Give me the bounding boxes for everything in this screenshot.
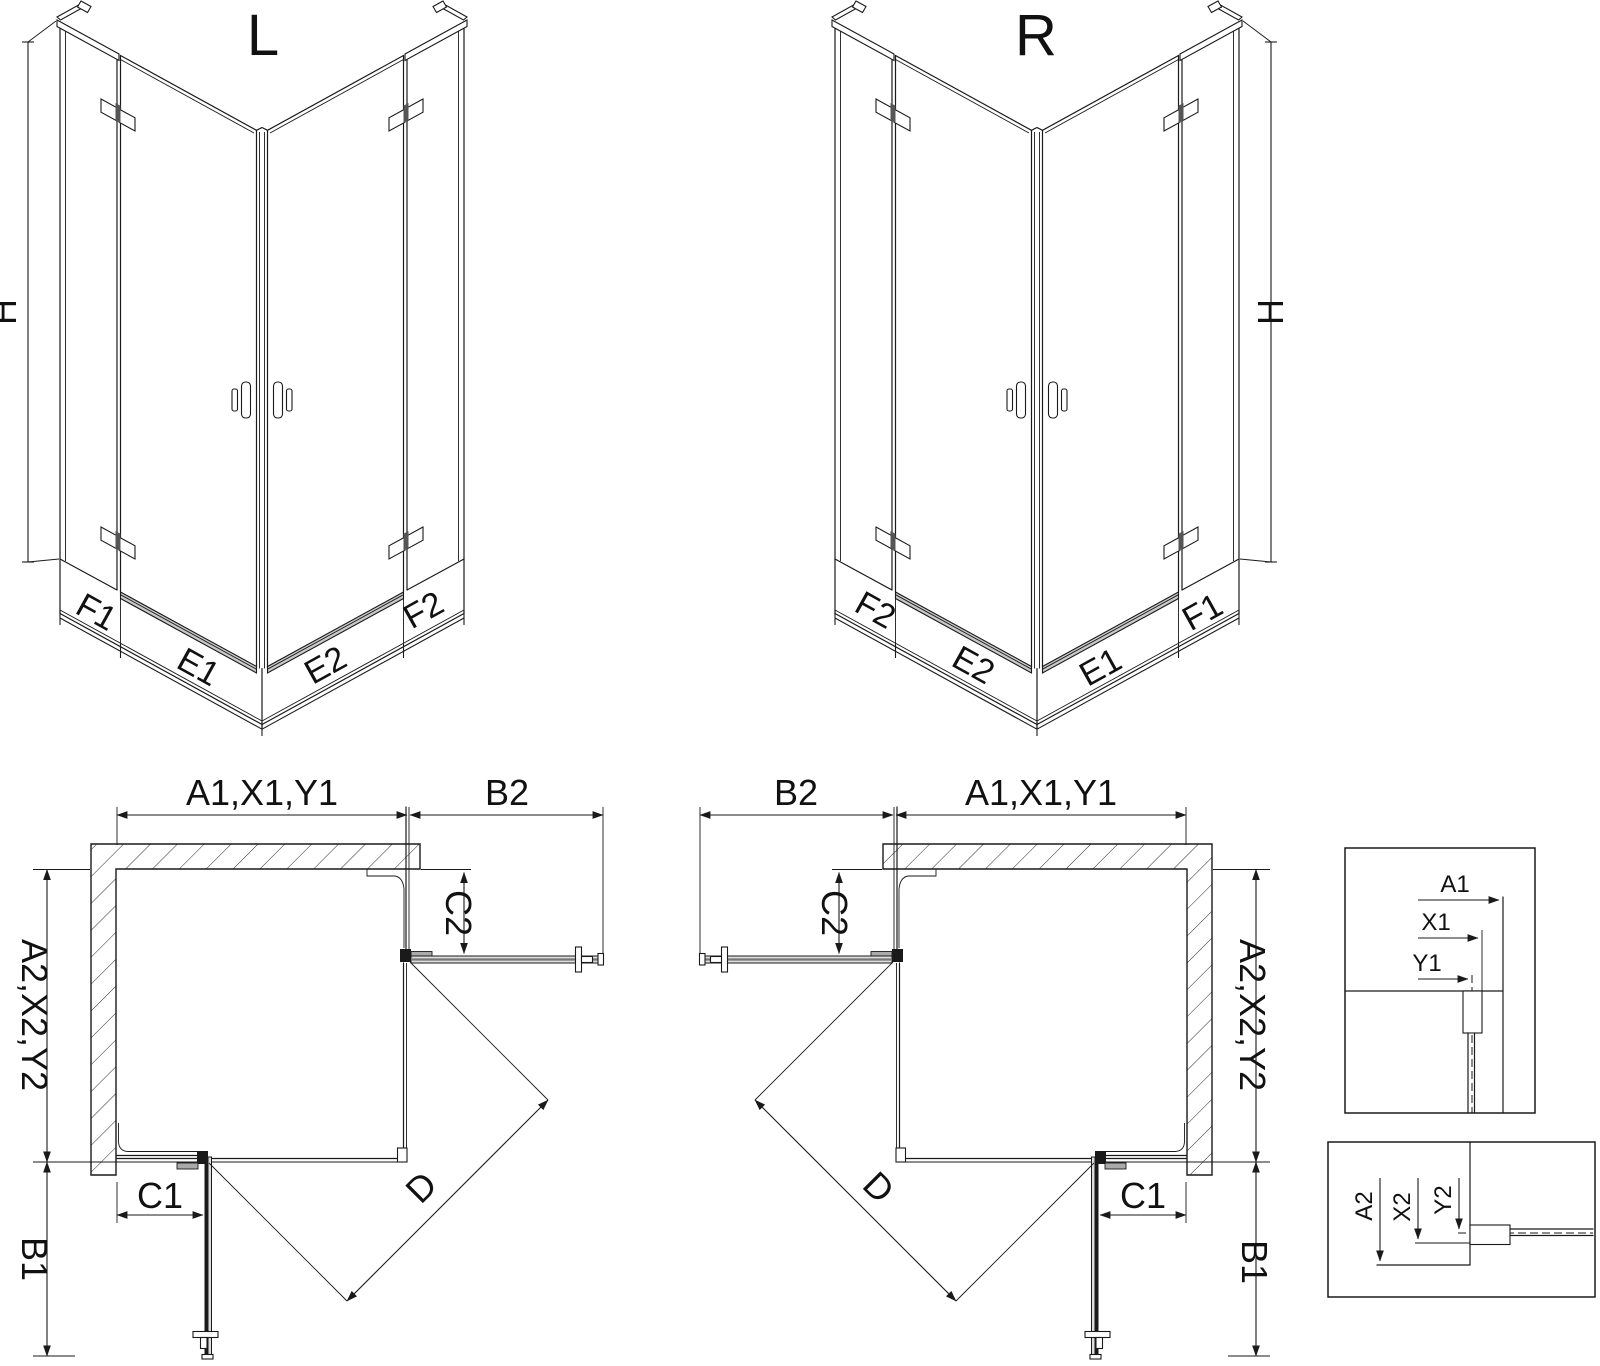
- plan-view-r-geometry: [700, 807, 1271, 1359]
- dim-label-b1-plan-r: B1: [1234, 1240, 1275, 1284]
- dim-label-a2x2y2-plan-r: A2,X2,Y2: [1232, 939, 1273, 1091]
- detail-box-a2: A2 X2 Y2: [1328, 1142, 1595, 1297]
- dim-label-d-plan-l: D: [397, 1163, 444, 1210]
- dim-label-b1-plan-l: B1: [14, 1237, 55, 1281]
- plan-view-r: A1,X1,Y1 B2 C2 A2,X2,Y2 B1 C1 D: [700, 772, 1276, 1359]
- dim-label-f1-r: F1: [1176, 586, 1229, 638]
- dim-label-a2-detail: A2: [1351, 1191, 1378, 1220]
- dim-label-a1-detail: A1: [1440, 871, 1469, 898]
- view-r-title: R: [1015, 3, 1057, 68]
- technical-drawing-page: L H F1 E1 E2 F2 R H F2 E2 E1 F1: [0, 0, 1600, 1366]
- wall-section-r: [883, 844, 1212, 1175]
- dim-label-x2-detail: X2: [1389, 1192, 1416, 1221]
- plan-view-l: A1,X1,Y1 B2 C2 A2,X2,Y2 B1 C1 D: [14, 772, 604, 1359]
- dim-label-f2-l: F2: [397, 584, 450, 636]
- dim-label-c1-plan-l: C1: [137, 1175, 183, 1216]
- dim-label-h-l: H: [0, 299, 24, 325]
- isometric-view-r: R H F2 E2 E1 F1: [832, 1, 1291, 736]
- isometric-view-l: L H F1 E1 E2 F2: [0, 1, 467, 736]
- dim-label-c2-plan-r: C2: [814, 890, 855, 936]
- dim-label-a1x1y1-plan-r: A1,X1,Y1: [965, 772, 1117, 813]
- dim-label-d-plan-r: D: [855, 1163, 902, 1210]
- dim-label-b2-plan-r: B2: [774, 772, 818, 813]
- dim-label-y2-detail: Y2: [1430, 1185, 1457, 1214]
- dim-label-f2-r: F2: [849, 584, 902, 636]
- dim-label-c1-plan-r: C1: [1120, 1175, 1166, 1216]
- dim-label-a1x1y1-plan-l: A1,X1,Y1: [186, 772, 338, 813]
- dim-label-x1-detail: X1: [1421, 909, 1450, 936]
- dim-label-a2x2y2-plan-l: A2,X2,Y2: [14, 939, 55, 1091]
- dim-label-b2-plan-l: B2: [485, 772, 529, 813]
- dim-label-c2-plan-l: C2: [438, 890, 479, 936]
- shower-enclosure-diagram: L H F1 E1 E2 F2 R H F2 E2 E1 F1: [0, 0, 1600, 1366]
- wall-section-l: [91, 844, 420, 1175]
- dim-label-y1-detail: Y1: [1412, 950, 1441, 977]
- dim-label-h-r: H: [1250, 299, 1291, 325]
- view-l-title: L: [247, 3, 279, 68]
- detail-box-a1: A1 X1 Y1: [1345, 848, 1535, 1113]
- dim-label-f1-l: F1: [70, 586, 123, 638]
